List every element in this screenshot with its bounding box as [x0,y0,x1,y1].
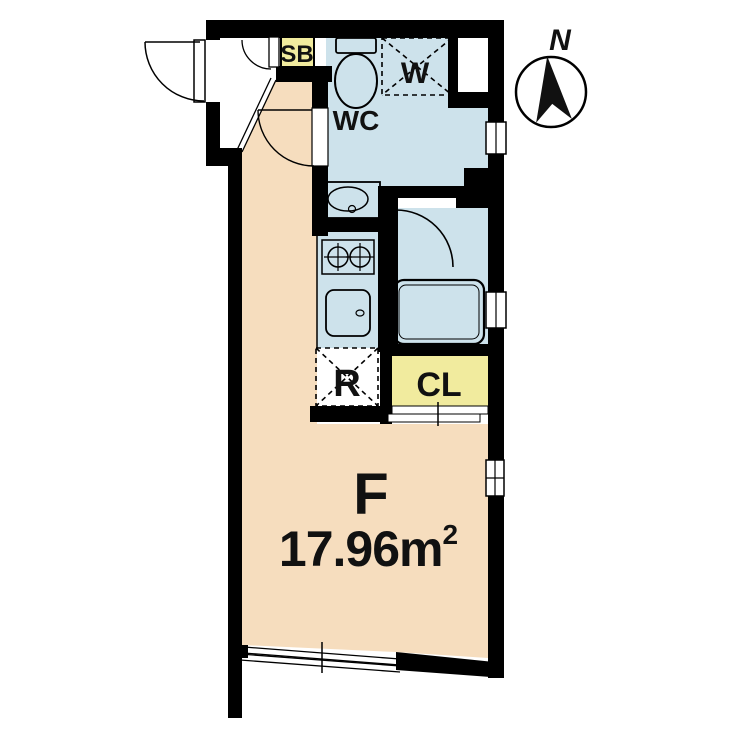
wall-left-upper-a [206,20,220,40]
wall-threshold-right [456,198,488,208]
north-label: N [549,24,572,57]
wall-niche-bottom [448,92,488,108]
compass: N [516,24,586,127]
wall-left-main [228,148,242,718]
wall-right [488,20,504,678]
wall-closet-top [380,344,488,356]
window-washroom [486,122,506,154]
wall-below-fridge [310,406,392,422]
room-name-label: F [353,462,388,527]
wall-wc-jog [464,168,488,198]
refrigerator-label: R [333,363,360,405]
floor-plan: SB WC W R CL F 17.96m2 N [0,0,734,734]
shoe-box-label: SB [280,41,313,68]
wall-sb-bottom [276,66,332,82]
wall-wc-col-top [312,80,328,108]
bathroom-threshold [398,198,456,208]
closet-label: CL [416,366,461,404]
compass-needle-icon [529,54,572,122]
entrance-door-swing [145,40,205,102]
wall-niche-left [448,36,458,94]
window-bathroom [486,292,506,328]
closet-sliding-door [388,402,488,426]
wall-left-upper-b [206,102,220,148]
window-main-room [486,460,504,496]
bathroom-floor [392,198,488,346]
wc-door-opening [312,108,328,166]
wall-kitchen-right [378,186,398,352]
wc-label: WC [333,105,380,136]
room-area-label: 17.96m2 [279,519,458,577]
washer-label: W [401,57,430,90]
wall-top [206,20,504,38]
